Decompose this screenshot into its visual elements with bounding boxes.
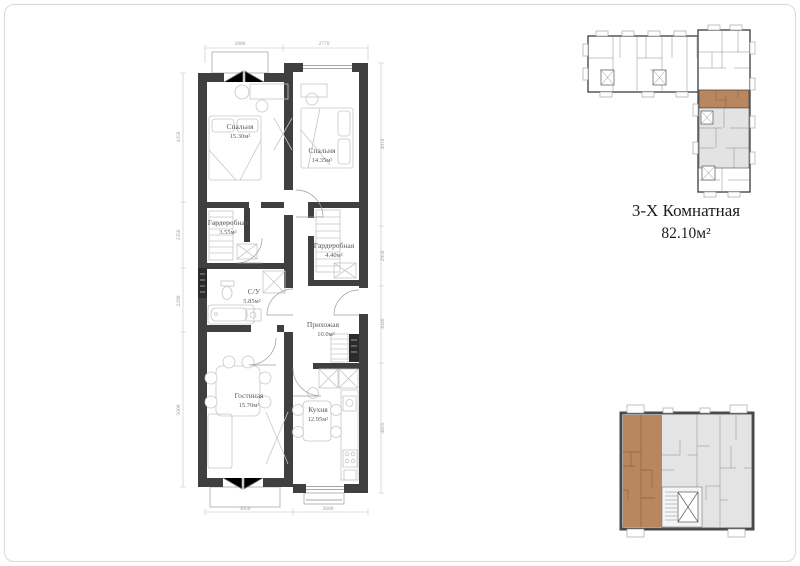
room-label-bathroom: С/У [248,287,261,296]
room-label-hallway: Прихожая [307,320,340,329]
dim-bottom-2: 2600 [323,506,334,512]
room-area-wardrobe-1: 3.55м² [219,229,236,236]
apartment-total-area: 82.10м² [661,225,711,242]
room-label-bedroom-1: Спальня [226,122,254,131]
dim-bottom-1: 3050 [240,506,251,512]
stairwell-icon-2 [701,111,713,124]
highlighted-unit-overview [699,90,749,108]
room-label-kitchen: Кухня [308,405,328,414]
dim-right-4: 4855 [380,422,386,433]
room-area-bathroom: 5.85м² [243,298,260,305]
plan-sheet: 2880 2770 3050 2600 4350 2350 2290 5000 … [0,0,800,566]
drawing-canvas: 2880 2770 3050 2600 4350 2350 2290 5000 … [0,0,800,566]
dim-left-3: 2290 [176,295,182,306]
room-label-wardrobe-2: Гардеробная [314,241,355,250]
dim-left-4: 5000 [176,404,182,415]
building-overview-plan [583,25,755,197]
dim-right-1: 4910 [380,138,386,149]
room-area-living: 15.70м² [239,402,260,409]
floor-section-plan [621,405,753,537]
dim-top-1: 2880 [235,41,246,47]
dim-left-2: 2350 [176,229,182,240]
room-area-kitchen: 12.95м² [308,416,329,423]
dim-left-1: 4350 [176,131,182,142]
dim-right-2: 2950 [380,250,386,261]
room-label-wardrobe-1: Гардеробная [208,218,249,227]
stairwell-icon-3 [702,166,715,180]
room-label-bedroom-2: Спальня [308,146,336,155]
dim-right-3: 3040 [380,318,386,329]
room-area-hallway: 10.0м² [317,331,334,338]
apartment-type-title: 3-Х Комнатная [632,201,740,220]
apartment-title: 3-Х Комнатная 82.10м² [632,201,740,242]
stairwell-icon-section [662,487,702,527]
highlighted-unit-section [623,415,662,527]
room-label-living: Гостиная [234,391,264,400]
room-area-bedroom-2: 14.35м² [312,157,333,164]
room-area-wardrobe-2: 4.40м² [325,252,342,259]
apartment-plan: 2880 2770 3050 2600 4350 2350 2290 5000 … [176,41,386,515]
dim-top-2: 2770 [319,41,330,47]
room-area-bedroom-1: 15.30м² [230,133,251,140]
